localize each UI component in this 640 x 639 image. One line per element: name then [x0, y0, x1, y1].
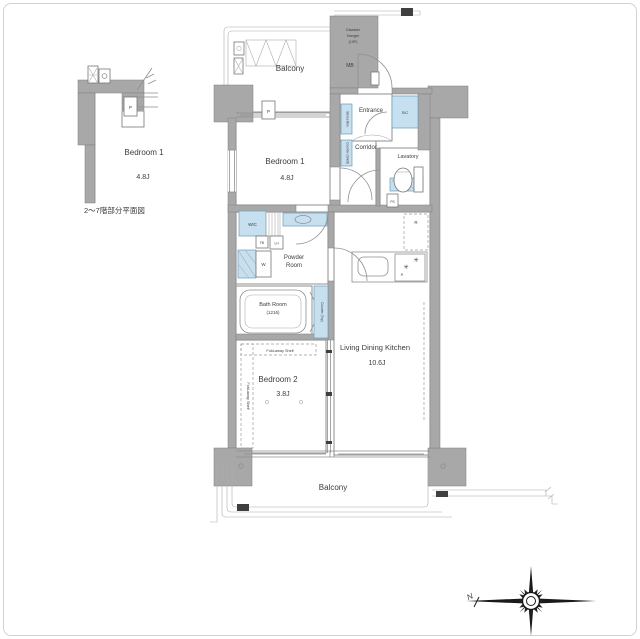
pipe-space-label: P — [267, 109, 270, 114]
powder-room-label-1: Powder — [284, 255, 304, 261]
disaster-hanger-line3: (10F) — [348, 40, 358, 44]
balcony-bottom-label: Balcony — [319, 483, 347, 492]
laundry-hatch — [238, 250, 256, 278]
north-label: N — [465, 591, 474, 602]
svg-text:✳: ✳ — [413, 257, 418, 264]
powder-vanity — [283, 213, 327, 226]
shoes-box-label: Shoes Box — [346, 111, 350, 127]
disaster-hanger-line2: Hanger — [347, 34, 360, 38]
wic-label: WIC — [248, 222, 257, 227]
inset-room-label: Bedroom 1 — [124, 148, 164, 157]
floorplan-drawing: P Bedroom 1 4.8J 2〜7階部分平面図 — [0, 0, 640, 639]
lh-label: LH — [274, 242, 279, 246]
main-plan: Balcony — [210, 8, 558, 522]
shelf-side-label: Fold-away Shelf — [246, 382, 250, 410]
bedroom1-size: 4.8J — [280, 175, 293, 182]
inset-room-size: 4.8J — [136, 174, 149, 181]
balcony-bottom-lines — [210, 458, 558, 522]
inset-pipe-space-label: P — [129, 105, 132, 110]
counter-shelf-label: Counter (Shelf) — [346, 142, 350, 164]
svg-text:✳: ✳ — [403, 264, 408, 271]
inset-plan: P Bedroom 1 4.8J 2〜7階部分平面図 — [78, 66, 164, 215]
lavatory-label: Lavatory — [397, 154, 418, 160]
compass-tick — [474, 597, 479, 607]
meter-box-label: MB — [346, 63, 354, 69]
balcony-top-label: Balcony — [276, 64, 304, 73]
inset-caption: 2〜7階部分平面図 — [84, 205, 145, 215]
ldk-size: 10.6J — [368, 360, 385, 367]
bedroom2-sliding-door — [326, 340, 332, 453]
bedroom2-size: 3.8J — [276, 391, 289, 398]
powder-room-label-2: Room — [286, 263, 302, 269]
counter-top-label: Counter (Top) — [320, 302, 324, 322]
ps-label: PS — [390, 200, 394, 204]
bathroom-size: (1216) — [266, 310, 280, 315]
floorplan-page: P Bedroom 1 4.8J 2〜7階部分平面図 — [0, 0, 640, 639]
shelf-top-label: Fold-away Shelf — [266, 349, 294, 353]
bathroom-label: Bath Room — [259, 302, 287, 308]
compass: N — [465, 566, 596, 636]
bedroom2-label: Bedroom 2 — [258, 375, 298, 384]
fb-label: FB — [260, 241, 264, 245]
bedroom1-label: Bedroom 1 — [265, 157, 305, 166]
ldk-label: Living Dining Kitchen — [340, 343, 410, 352]
disaster-hanger-line1: Disaster — [346, 28, 361, 32]
mb-notch — [371, 72, 379, 85]
boundary-lines — [224, 8, 420, 96]
corridor-label: Corridor — [355, 145, 377, 151]
sic-label: SIC — [402, 110, 409, 115]
